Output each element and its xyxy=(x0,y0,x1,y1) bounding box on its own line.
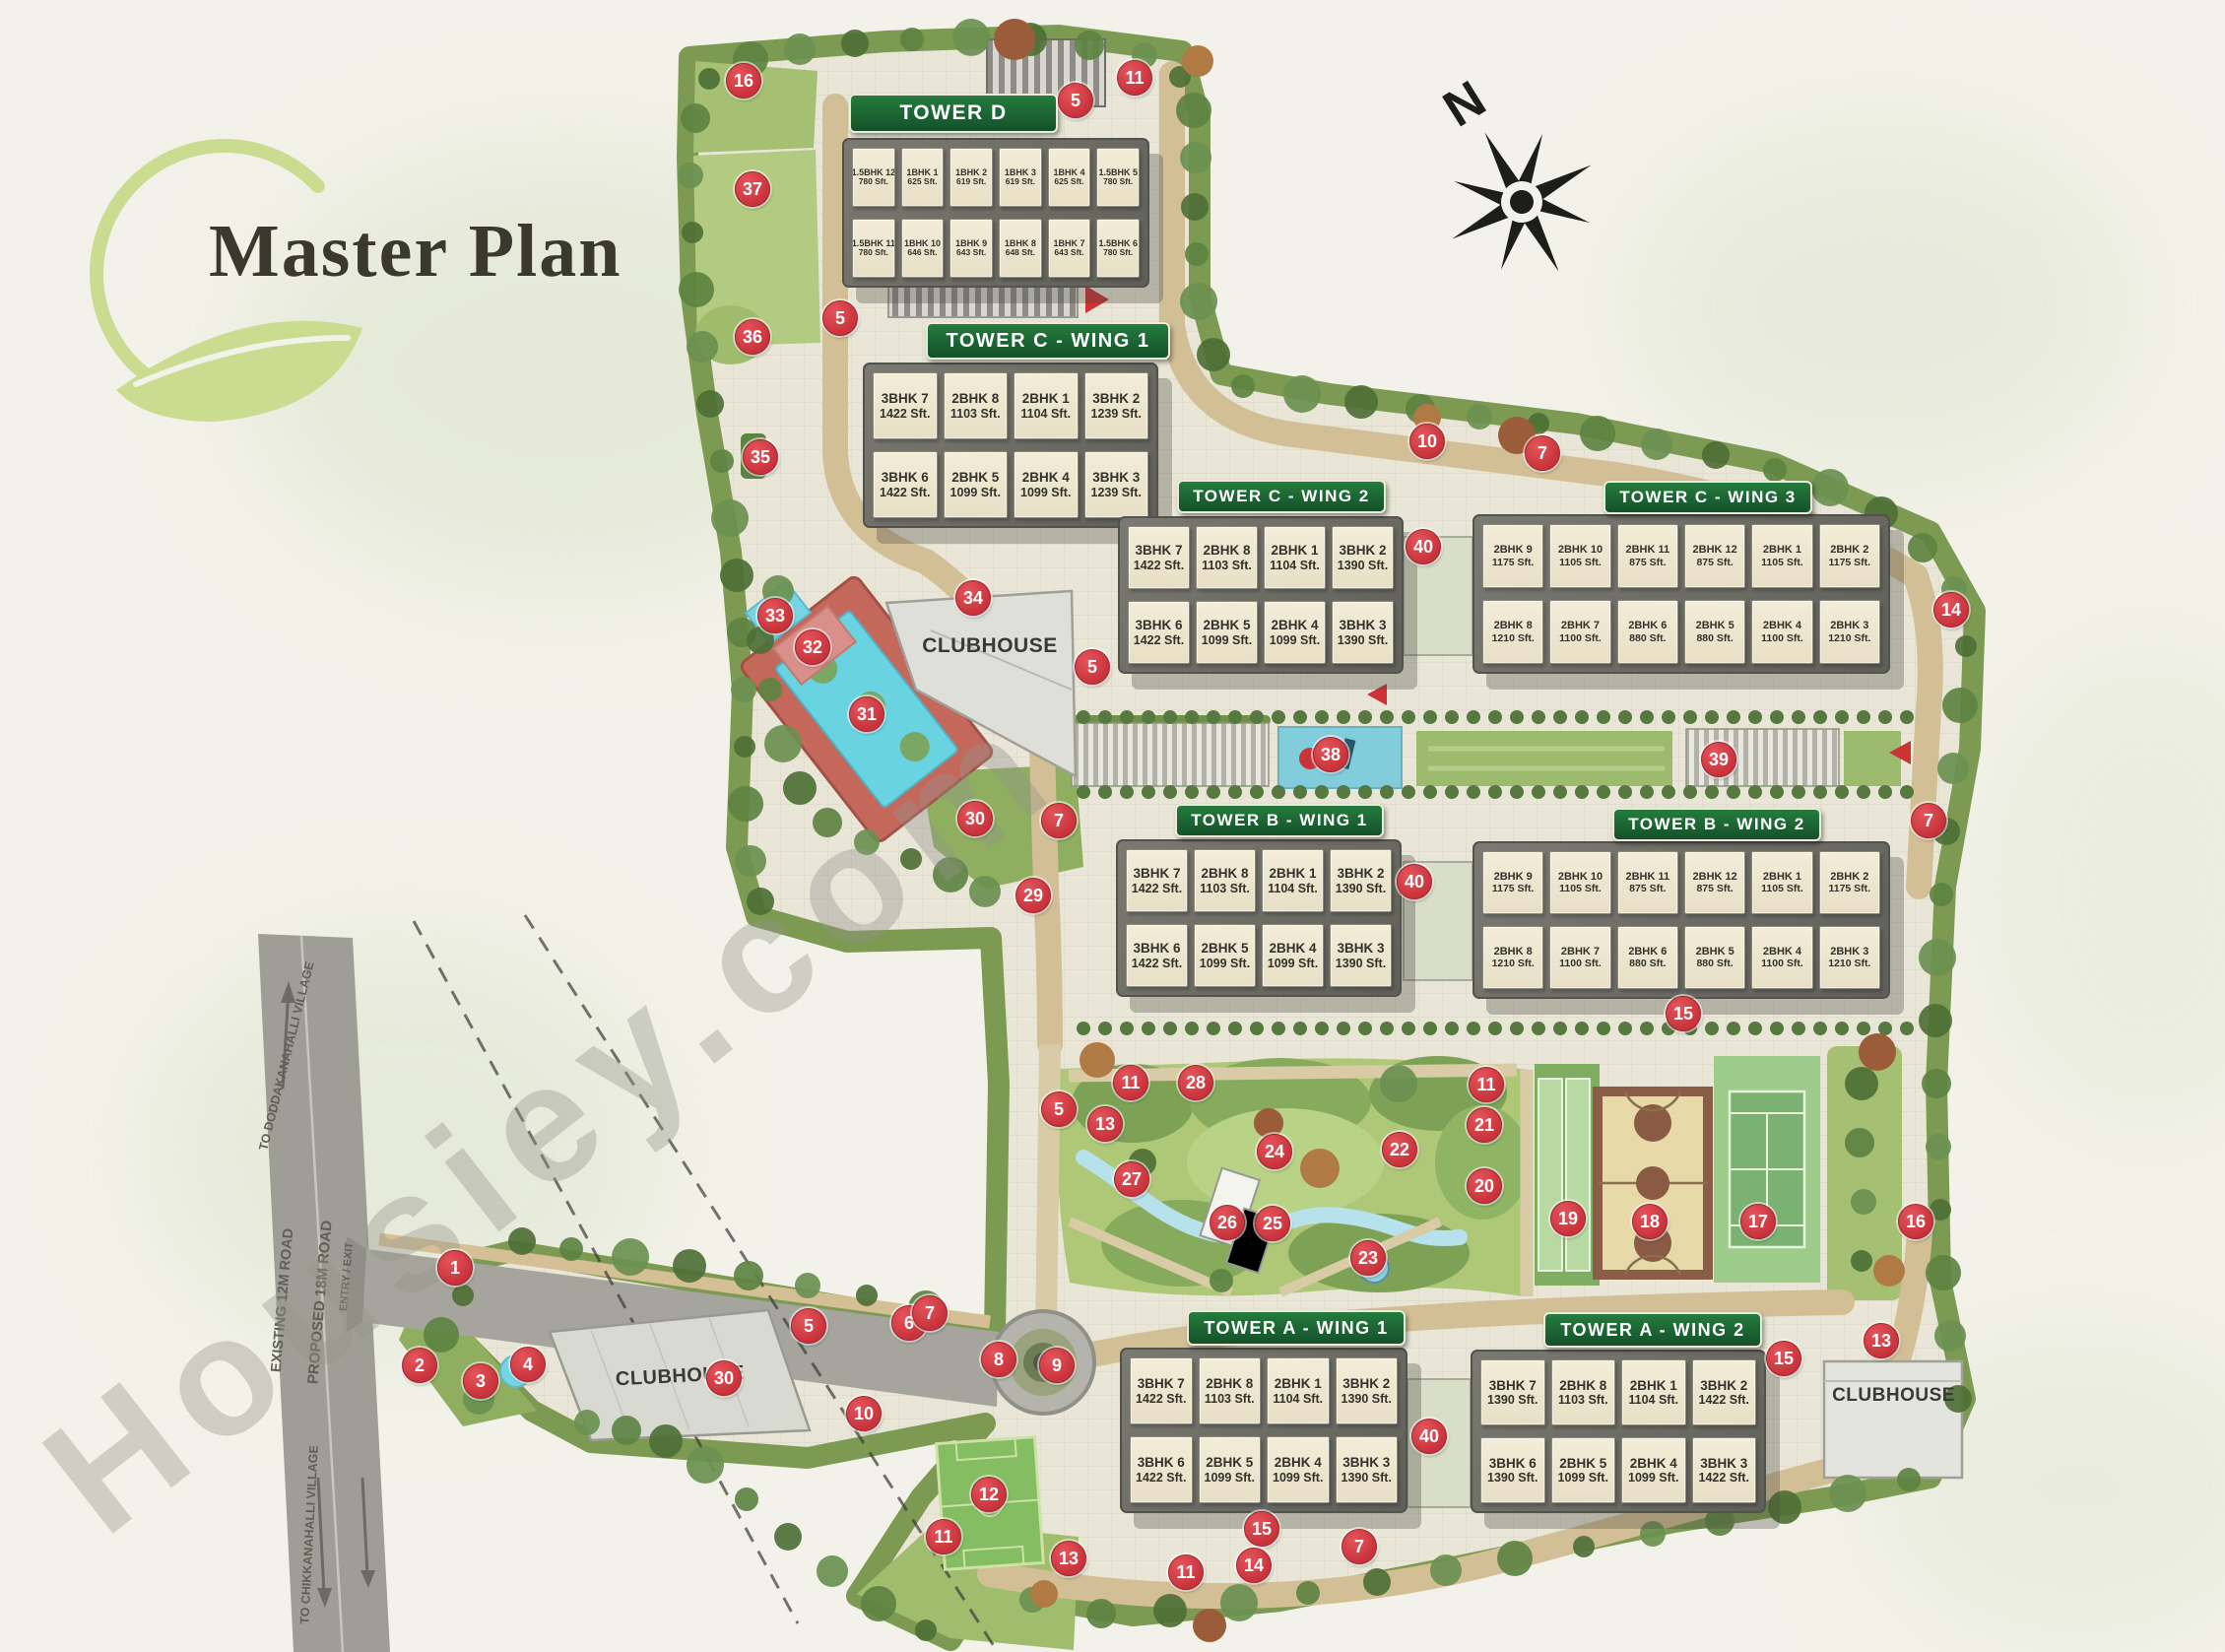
unit-card: 2BHK 81103 Sft. xyxy=(1551,1359,1616,1425)
unit-type: 2BHK 8 xyxy=(1559,1378,1606,1394)
unit-card: 2BHK 101105 Sft. xyxy=(1549,851,1610,914)
unit-card: 1.5BHK 6780 Sft. xyxy=(1096,219,1140,278)
tree xyxy=(1180,283,1217,320)
hedge xyxy=(1445,785,1459,799)
unit-type: 3BHK 7 xyxy=(1135,543,1182,559)
unit-card: 2BHK 5880 Sft. xyxy=(1684,600,1745,664)
unit-card: 2BHK 41100 Sft. xyxy=(1751,600,1812,664)
tower-d: 1.5BHK 12780 Sft.1BHK 1625 Sft.1BHK 2619… xyxy=(842,138,1149,288)
unit-area: 1104 Sft. xyxy=(1628,1393,1678,1407)
tree xyxy=(696,390,724,418)
hedge xyxy=(1098,1022,1112,1035)
hedge xyxy=(1293,785,1307,799)
unit-card: 2BHK 51099 Sft. xyxy=(944,451,1009,518)
unit-area: 1390 Sft. xyxy=(1487,1471,1538,1485)
tree xyxy=(687,331,718,363)
marker-11: 11 xyxy=(1113,1065,1148,1100)
clubhouse-east xyxy=(1824,1361,1962,1478)
unit-type: 3BHK 7 xyxy=(1489,1378,1537,1394)
tree xyxy=(612,1238,649,1276)
unit-area: 1099 Sft. xyxy=(1273,1471,1323,1485)
tree xyxy=(649,1424,683,1458)
unit-card: 3BHK 21390 Sft. xyxy=(1332,526,1394,589)
marker-15: 15 xyxy=(1666,996,1701,1031)
hedge xyxy=(1098,710,1112,724)
tree-autumn xyxy=(1300,1149,1340,1188)
unit-type: 2BHK 5 xyxy=(1559,1456,1606,1472)
hedge xyxy=(1142,785,1155,799)
unit-area: 625 Sft. xyxy=(907,177,937,187)
tree-autumn xyxy=(1193,1609,1226,1642)
unit-card: 2BHK 41100 Sft. xyxy=(1751,926,1812,989)
unit-card: 2BHK 81103 Sft. xyxy=(1196,526,1258,589)
tree-autumn xyxy=(1859,1033,1896,1071)
hedge xyxy=(1748,710,1762,724)
unit-type: 2BHK 5 xyxy=(1203,618,1250,633)
unit-card: 1BHK 10646 Sft. xyxy=(901,219,945,278)
unit-area: 1100 Sft. xyxy=(1761,958,1803,969)
hedge xyxy=(1618,710,1632,724)
hedge xyxy=(1813,1022,1827,1035)
unit-card: 2BHK 81103 Sft. xyxy=(944,372,1009,439)
unit-area: 1103 Sft. xyxy=(950,407,1001,421)
hedge xyxy=(1337,1022,1350,1035)
tree xyxy=(1497,1541,1533,1576)
unit-card: 2BHK 101105 Sft. xyxy=(1549,524,1610,588)
unit-area: 780 Sft. xyxy=(859,177,888,187)
unit-type: 3BHK 7 xyxy=(882,391,929,407)
unit-area: 1390 Sft. xyxy=(1487,1393,1538,1407)
tree xyxy=(687,1446,724,1484)
tree xyxy=(1919,1004,1952,1037)
unit-card: 2BHK 51099 Sft. xyxy=(1551,1437,1616,1503)
unit-type: 2BHK 6 xyxy=(1628,620,1667,632)
tree xyxy=(1185,242,1209,266)
unit-card: 2BHK 6880 Sft. xyxy=(1617,926,1678,989)
hedge xyxy=(1575,785,1589,799)
unit-type: 2BHK 8 xyxy=(1201,866,1248,882)
unit-type: 2BHK 1 xyxy=(1271,543,1318,559)
hedge xyxy=(1488,1022,1502,1035)
unit-area: 1103 Sft. xyxy=(1558,1393,1608,1407)
tree xyxy=(1086,1599,1116,1628)
marker-27: 27 xyxy=(1114,1161,1149,1197)
unit-area: 1100 Sft. xyxy=(1761,632,1803,644)
unit-card: 3BHK 21422 Sft. xyxy=(1692,1359,1757,1425)
compass-icon: N xyxy=(1399,69,1625,296)
clubhouse-label-1: CLUBHOUSE xyxy=(916,634,1064,658)
unit-type: 2BHK 4 xyxy=(1271,618,1318,633)
unit-card: 3BHK 31422 Sft. xyxy=(1692,1437,1757,1503)
unit-row: 2BHK 81210 Sft.2BHK 71100 Sft.2BHK 6880 … xyxy=(1482,926,1880,989)
hedge xyxy=(1662,785,1675,799)
unit-area: 625 Sft. xyxy=(1054,177,1083,187)
unit-type: 2BHK 12 xyxy=(1693,544,1737,557)
hedge xyxy=(1250,785,1264,799)
hedge xyxy=(1185,785,1199,799)
unit-area: 648 Sft. xyxy=(1006,248,1035,258)
unit-area: 1099 Sft. xyxy=(1202,633,1252,647)
unit-card: 1BHK 1625 Sft. xyxy=(901,148,945,207)
tree-autumn xyxy=(1254,1108,1283,1138)
tree xyxy=(1845,1128,1874,1157)
hedge xyxy=(1272,1022,1285,1035)
tower-b-wing-1-sign: TOWER B - WING 1 xyxy=(1175,804,1384,837)
tree xyxy=(673,1249,706,1283)
unit-card: 2BHK 41099 Sft. xyxy=(1264,601,1326,664)
tree-autumn xyxy=(1873,1255,1905,1287)
unit-area: 1210 Sft. xyxy=(1492,632,1535,644)
pergola xyxy=(1072,723,1269,786)
unit-area: 1390 Sft. xyxy=(1342,1471,1392,1485)
unit-type: 2BHK 5 xyxy=(951,470,999,486)
hedge xyxy=(1597,785,1610,799)
unit-type: 3BHK 6 xyxy=(882,470,929,486)
marker-11: 11 xyxy=(1168,1554,1204,1590)
marker-14: 14 xyxy=(1933,592,1969,628)
unit-card: 2BHK 41099 Sft. xyxy=(1262,924,1324,987)
unit-area: 1422 Sft. xyxy=(880,407,930,421)
unit-type: 2BHK 7 xyxy=(1561,620,1600,632)
unit-area: 1239 Sft. xyxy=(1091,407,1142,421)
unit-card: 2BHK 81210 Sft. xyxy=(1482,600,1543,664)
unit-card: 3BHK 61422 Sft. xyxy=(873,451,938,518)
tower-c-wing-2: 3BHK 71422 Sft.2BHK 81103 Sft.2BHK 11104… xyxy=(1118,516,1404,674)
unit-type: 3BHK 2 xyxy=(1337,866,1384,882)
page-title: Master Plan xyxy=(209,209,622,295)
unit-type: 2BHK 4 xyxy=(1269,941,1316,957)
tree xyxy=(734,736,755,758)
unit-card: 3BHK 31390 Sft. xyxy=(1332,601,1394,664)
marker-11: 11 xyxy=(1117,60,1152,96)
unit-area: 1210 Sft. xyxy=(1828,958,1870,969)
unit-area: 875 Sft. xyxy=(1629,557,1666,568)
tree xyxy=(1220,1584,1258,1621)
tower-b-wing-2: 2BHK 91175 Sft.2BHK 101105 Sft.2BHK 1187… xyxy=(1472,841,1890,999)
tree xyxy=(1922,1069,1951,1098)
hedge xyxy=(1553,785,1567,799)
unit-type: 3BHK 3 xyxy=(1337,941,1384,957)
hedge xyxy=(1575,710,1589,724)
tree xyxy=(710,449,734,473)
hedge xyxy=(1142,710,1155,724)
hedge xyxy=(1705,1022,1719,1035)
tree xyxy=(731,677,756,702)
unit-type: 2BHK 5 xyxy=(1696,620,1734,632)
tree-autumn xyxy=(1080,1042,1115,1078)
marker-24: 24 xyxy=(1257,1134,1292,1169)
unit-area: 1105 Sft. xyxy=(1761,883,1803,894)
hedge xyxy=(1640,710,1654,724)
unit-area: 880 Sft. xyxy=(1629,958,1666,969)
tree xyxy=(1763,458,1787,482)
unit-area: 1175 Sft. xyxy=(1828,883,1870,894)
tree xyxy=(1573,1536,1595,1557)
marker-36: 36 xyxy=(735,319,770,355)
marker-13: 13 xyxy=(1051,1541,1086,1576)
unit-card: 3BHK 31390 Sft. xyxy=(1336,1436,1399,1503)
hedge xyxy=(1770,710,1784,724)
unit-area: 1099 Sft. xyxy=(950,486,1001,499)
hedge xyxy=(1142,1022,1155,1035)
marker-39: 39 xyxy=(1701,742,1736,777)
tree xyxy=(774,1523,802,1551)
hedge xyxy=(1857,785,1870,799)
tree xyxy=(679,272,714,307)
hedge xyxy=(1835,710,1849,724)
hedge xyxy=(1120,785,1134,799)
marker-23: 23 xyxy=(1350,1240,1386,1276)
tree xyxy=(764,725,802,762)
unit-type: 2BHK 8 xyxy=(1494,620,1533,632)
unit-card: 1BHK 9643 Sft. xyxy=(949,219,993,278)
unit-type: 3BHK 7 xyxy=(1138,1376,1185,1392)
unit-area: 1422 Sft. xyxy=(880,486,930,499)
unit-card: 1BHK 8648 Sft. xyxy=(999,219,1042,278)
hedge xyxy=(1337,710,1350,724)
tree xyxy=(1296,1581,1320,1605)
marker-33: 33 xyxy=(757,598,793,633)
tree xyxy=(933,857,968,892)
tree xyxy=(747,888,774,915)
unit-area: 875 Sft. xyxy=(1629,883,1666,894)
unit-area: 619 Sft. xyxy=(1006,177,1035,187)
unit-card: 3BHK 21239 Sft. xyxy=(1084,372,1149,439)
unit-card: 1BHK 3619 Sft. xyxy=(999,148,1042,207)
marker-16: 16 xyxy=(726,63,761,99)
hedge xyxy=(1445,710,1459,724)
unit-card: 3BHK 61422 Sft. xyxy=(1128,601,1190,664)
marker-4: 4 xyxy=(510,1347,546,1382)
marker-5: 5 xyxy=(1041,1091,1077,1127)
unit-type: 3BHK 6 xyxy=(1138,1455,1185,1471)
clubhouse-label-3: CLUBHOUSE xyxy=(1822,1385,1965,1407)
marker-5: 5 xyxy=(791,1308,826,1344)
hedge xyxy=(1727,785,1740,799)
hedge xyxy=(1727,1022,1740,1035)
marker-15: 15 xyxy=(1766,1341,1801,1376)
hedge xyxy=(1857,1022,1870,1035)
unit-card: 2BHK 6880 Sft. xyxy=(1617,600,1678,664)
hedge xyxy=(1272,785,1285,799)
marker-16: 16 xyxy=(1898,1204,1933,1239)
hedge xyxy=(1315,785,1329,799)
tree xyxy=(1851,1189,1876,1215)
unit-row: 3BHK 61422 Sft.2BHK 51099 Sft.2BHK 41099… xyxy=(1128,601,1394,664)
unit-row: 3BHK 61422 Sft.2BHK 51099 Sft.2BHK 41099… xyxy=(1130,1436,1398,1503)
tree xyxy=(1153,1594,1187,1627)
marker-40: 40 xyxy=(1411,1419,1447,1454)
tree xyxy=(720,559,753,592)
unit-card: 3BHK 71422 Sft. xyxy=(1128,526,1190,589)
unit-area: 780 Sft. xyxy=(859,248,888,258)
hedge xyxy=(1878,1022,1892,1035)
unit-type: 2BHK 12 xyxy=(1693,871,1737,884)
hedge xyxy=(1488,785,1502,799)
marker-20: 20 xyxy=(1467,1168,1502,1204)
marker-21: 21 xyxy=(1467,1107,1502,1143)
unit-area: 1104 Sft. xyxy=(1273,1392,1323,1406)
unit-area: 1100 Sft. xyxy=(1559,958,1602,969)
marker-31: 31 xyxy=(849,696,884,732)
hedge xyxy=(1163,710,1177,724)
unit-card: 2BHK 41099 Sft. xyxy=(1621,1437,1686,1503)
unit-card: 3BHK 31390 Sft. xyxy=(1330,924,1392,987)
unit-type: 2BHK 1 xyxy=(1275,1376,1322,1392)
unit-card: 2BHK 81210 Sft. xyxy=(1482,926,1543,989)
unit-type: 2BHK 1 xyxy=(1269,866,1316,882)
tree xyxy=(1075,31,1104,60)
unit-area: 1099 Sft. xyxy=(1270,633,1320,647)
tree xyxy=(817,1555,848,1587)
marker-19: 19 xyxy=(1550,1201,1586,1236)
hedge xyxy=(1532,785,1545,799)
unit-card: 2BHK 91175 Sft. xyxy=(1482,524,1543,588)
hedge xyxy=(1358,1022,1372,1035)
unit-type: 2BHK 11 xyxy=(1626,544,1670,557)
tree xyxy=(1380,1065,1417,1102)
tree xyxy=(559,1237,583,1261)
tree xyxy=(735,845,766,877)
unit-area: 1390 Sft. xyxy=(1338,559,1388,572)
unit-area: 1390 Sft. xyxy=(1342,1392,1392,1406)
marker-32: 32 xyxy=(795,629,830,665)
unit-card: 2BHK 11105 Sft. xyxy=(1751,524,1812,588)
hedge xyxy=(1185,1022,1199,1035)
hedge xyxy=(1120,710,1134,724)
unit-area: 880 Sft. xyxy=(1696,632,1733,644)
tree xyxy=(734,1261,763,1290)
hedge xyxy=(1770,1022,1784,1035)
hedge xyxy=(1705,785,1719,799)
hedge xyxy=(1228,785,1242,799)
tower-b-wing-1: 3BHK 71422 Sft.2BHK 81103 Sft.2BHK 11104… xyxy=(1116,839,1402,997)
unit-type: 2BHK 8 xyxy=(951,391,999,407)
tree xyxy=(969,876,1001,907)
hedge xyxy=(1900,785,1914,799)
unit-type: 2BHK 8 xyxy=(1494,946,1533,958)
unit-card: 2BHK 11104 Sft. xyxy=(1621,1359,1686,1425)
unit-type: 2BHK 8 xyxy=(1206,1376,1253,1392)
hedge xyxy=(1553,1022,1567,1035)
unit-area: 1175 Sft. xyxy=(1492,883,1535,894)
unit-card: 1.5BHK 11780 Sft. xyxy=(852,219,895,278)
unit-type: 3BHK 6 xyxy=(1135,618,1182,633)
tree xyxy=(900,848,922,870)
marker-1: 1 xyxy=(437,1250,473,1286)
marker-13: 13 xyxy=(1087,1106,1123,1142)
unit-area: 880 Sft. xyxy=(1629,632,1666,644)
unit-type: 2BHK 2 xyxy=(1830,871,1868,884)
hedge xyxy=(1467,710,1480,724)
hedge xyxy=(1705,710,1719,724)
tree xyxy=(1768,1490,1801,1524)
unit-type: 2BHK 10 xyxy=(1558,871,1603,884)
tree xyxy=(1926,1255,1961,1290)
unit-area: 1390 Sft. xyxy=(1336,957,1386,970)
unit-area: 1390 Sft. xyxy=(1336,882,1386,895)
unit-type: 2BHK 5 xyxy=(1696,946,1734,958)
unit-type: 3BHK 3 xyxy=(1700,1456,1747,1472)
hedge xyxy=(1618,1022,1632,1035)
unit-area: 1105 Sft. xyxy=(1559,557,1602,568)
marker-11: 11 xyxy=(1469,1067,1504,1102)
unit-row: 2BHK 91175 Sft.2BHK 101105 Sft.2BHK 1187… xyxy=(1482,851,1880,914)
unit-area: 780 Sft. xyxy=(1103,177,1133,187)
hedge xyxy=(1098,785,1112,799)
hedge xyxy=(1770,785,1784,799)
hedge xyxy=(1358,785,1372,799)
hedge xyxy=(1228,1022,1242,1035)
marker-38: 38 xyxy=(1313,737,1348,772)
unit-card: 2BHK 11104 Sft. xyxy=(1267,1357,1330,1424)
hedge xyxy=(1900,1022,1914,1035)
hedge xyxy=(1358,710,1372,724)
tree xyxy=(1181,193,1209,221)
unit-card: 3BHK 21390 Sft. xyxy=(1330,849,1392,912)
unit-area: 1099 Sft. xyxy=(1020,486,1071,499)
hedge xyxy=(1380,710,1394,724)
hedge xyxy=(1532,1022,1545,1035)
unit-area: 1104 Sft. xyxy=(1270,559,1320,572)
unit-card: 2BHK 51099 Sft. xyxy=(1194,924,1256,987)
hedge xyxy=(1727,710,1740,724)
tower-a-wing-1-sign: TOWER A - WING 1 xyxy=(1187,1310,1406,1346)
unit-area: 1390 Sft. xyxy=(1338,633,1388,647)
unit-card: 2BHK 31210 Sft. xyxy=(1819,600,1880,664)
marker-37: 37 xyxy=(735,171,770,207)
hedge xyxy=(1423,710,1437,724)
marker-13: 13 xyxy=(1864,1323,1899,1358)
tree xyxy=(1702,441,1730,469)
hedge xyxy=(1380,785,1394,799)
tower-b-wing-2-sign: TOWER B - WING 2 xyxy=(1612,808,1821,841)
tree xyxy=(1580,416,1615,451)
unit-card: 2BHK 11104 Sft. xyxy=(1014,372,1079,439)
marker-7: 7 xyxy=(912,1295,948,1331)
compass-north-label: N xyxy=(1434,70,1496,138)
hedge xyxy=(1597,1022,1610,1035)
unit-area: 1210 Sft. xyxy=(1828,632,1870,644)
unit-card: 2BHK 71100 Sft. xyxy=(1549,926,1610,989)
marker-2: 2 xyxy=(402,1348,437,1383)
unit-type: 2BHK 4 xyxy=(1630,1456,1677,1472)
hedge xyxy=(1207,710,1220,724)
hedge xyxy=(1315,710,1329,724)
master-plan-page: { "title": "Master Plan", "watermark": "… xyxy=(0,0,2225,1652)
unit-card: 3BHK 61422 Sft. xyxy=(1126,924,1188,987)
tree xyxy=(698,68,720,90)
tree xyxy=(1467,404,1492,430)
unit-card: 2BHK 71100 Sft. xyxy=(1549,600,1610,664)
tree xyxy=(508,1227,536,1255)
hedge xyxy=(1163,785,1177,799)
unit-area: 780 Sft. xyxy=(1103,248,1133,258)
tower-a-wing-2-sign: TOWER A - WING 2 xyxy=(1543,1312,1762,1348)
tree xyxy=(861,1586,896,1621)
hedge xyxy=(1510,1022,1524,1035)
hedge xyxy=(1597,710,1610,724)
unit-type: 3BHK 2 xyxy=(1342,1376,1390,1392)
tree xyxy=(1641,429,1672,460)
tree xyxy=(952,19,990,56)
unit-card: 2BHK 5880 Sft. xyxy=(1684,926,1745,989)
hedge xyxy=(1640,785,1654,799)
unit-row: 3BHK 61422 Sft.2BHK 51099 Sft.2BHK 41099… xyxy=(1126,924,1392,987)
unit-row: 3BHK 71422 Sft.2BHK 81103 Sft.2BHK 11104… xyxy=(873,372,1148,439)
tree xyxy=(1363,1568,1391,1596)
tree xyxy=(1231,374,1255,398)
